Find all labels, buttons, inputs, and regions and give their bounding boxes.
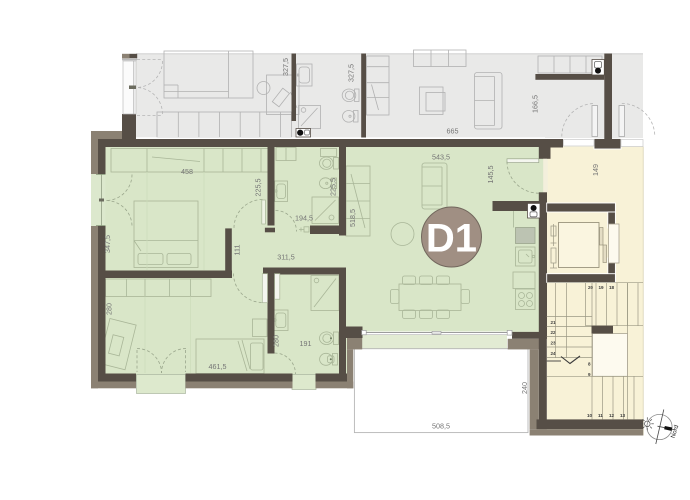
svg-text:13: 13	[620, 413, 626, 418]
svg-text:111: 111	[233, 245, 242, 256]
svg-text:21: 21	[551, 320, 557, 325]
svg-text:347,5: 347,5	[103, 235, 112, 253]
svg-text:461,5: 461,5	[209, 362, 227, 371]
svg-text:18: 18	[609, 285, 615, 290]
svg-text:508,5: 508,5	[432, 422, 450, 431]
svg-text:225,5: 225,5	[329, 178, 338, 196]
svg-text:145,5: 145,5	[486, 166, 495, 184]
svg-text:665: 665	[447, 127, 459, 136]
svg-text:280: 280	[272, 335, 281, 347]
svg-text:327,5: 327,5	[347, 64, 356, 82]
svg-text:191: 191	[300, 339, 312, 348]
svg-text:23: 23	[551, 341, 557, 346]
svg-text:19: 19	[599, 285, 605, 290]
svg-text:327,5: 327,5	[281, 58, 290, 76]
svg-text:24: 24	[551, 351, 557, 356]
svg-text:10: 10	[587, 413, 593, 418]
svg-text:194,5: 194,5	[295, 214, 313, 223]
svg-text:149: 149	[591, 164, 600, 176]
svg-text:8: 8	[588, 362, 591, 367]
svg-text:518,5: 518,5	[348, 209, 357, 227]
svg-text:311,5: 311,5	[277, 253, 294, 262]
svg-text:543,5: 543,5	[432, 153, 450, 162]
svg-text:458: 458	[181, 167, 193, 176]
svg-text:166,5: 166,5	[531, 95, 540, 113]
svg-text:22: 22	[551, 330, 557, 335]
svg-text:D1: D1	[426, 217, 477, 261]
svg-text:280: 280	[105, 303, 114, 315]
svg-text:240: 240	[520, 382, 529, 394]
svg-text:225,5: 225,5	[254, 179, 263, 197]
svg-text:20: 20	[588, 285, 594, 290]
svg-text:12: 12	[609, 413, 615, 418]
svg-text:11: 11	[598, 413, 603, 418]
